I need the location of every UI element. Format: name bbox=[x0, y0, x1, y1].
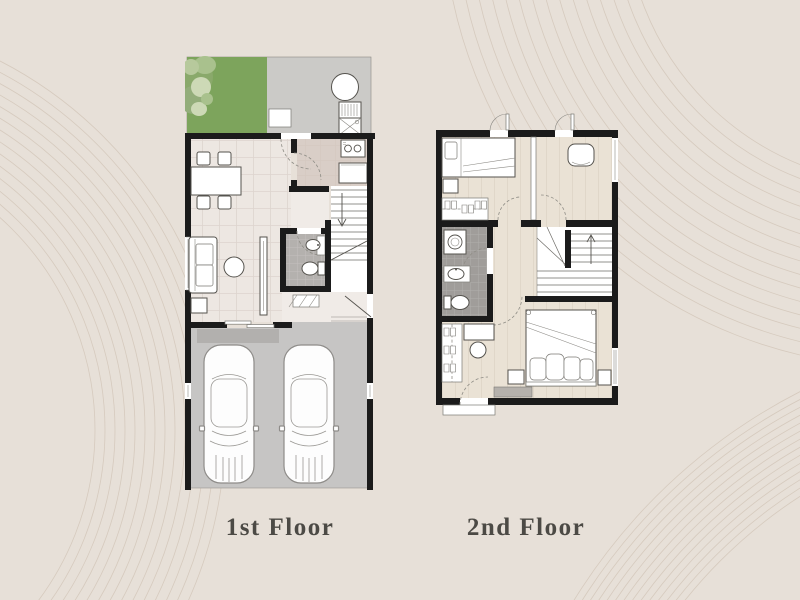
staircase bbox=[325, 186, 367, 292]
bathroom bbox=[280, 228, 331, 292]
first-floor-label: 1st Floor bbox=[185, 511, 375, 545]
chair bbox=[218, 152, 231, 165]
pillow bbox=[546, 354, 564, 380]
stove bbox=[341, 140, 365, 157]
pillow bbox=[445, 142, 457, 159]
kitchen-counter bbox=[339, 163, 367, 183]
pillow bbox=[530, 358, 546, 380]
bathroom-2 bbox=[436, 227, 493, 322]
garage bbox=[191, 322, 367, 488]
terrace-step bbox=[269, 109, 291, 127]
staircase-2 bbox=[537, 227, 612, 296]
laundry-sink bbox=[339, 118, 361, 135]
pillow bbox=[580, 359, 593, 380]
vanity-desk bbox=[464, 324, 494, 340]
side-window bbox=[612, 138, 618, 182]
left-wall bbox=[185, 133, 191, 490]
pillow bbox=[564, 357, 580, 380]
first-floor-plan bbox=[185, 55, 375, 500]
master-window bbox=[612, 348, 618, 386]
walkin-wardrobe bbox=[442, 324, 462, 382]
side-table bbox=[191, 298, 207, 313]
decorative-arcs bbox=[0, 0, 800, 600]
partition-wall bbox=[531, 137, 536, 220]
double-bed bbox=[526, 310, 596, 386]
second-floor-label: 2nd Floor bbox=[430, 511, 622, 545]
second-floor-plan bbox=[430, 106, 622, 418]
water-tank bbox=[332, 74, 359, 101]
wash-basin-2 bbox=[444, 266, 470, 282]
coffee-table bbox=[224, 257, 244, 277]
casement-window bbox=[555, 114, 574, 137]
washing-machine bbox=[339, 102, 361, 118]
toilet-2 bbox=[444, 296, 469, 310]
car bbox=[200, 345, 259, 483]
sliding-door bbox=[225, 321, 274, 328]
car bbox=[280, 345, 339, 483]
single-bed bbox=[442, 138, 515, 177]
casement-window bbox=[490, 114, 509, 137]
armchair bbox=[568, 144, 594, 166]
chair bbox=[197, 152, 210, 165]
chair bbox=[218, 196, 231, 209]
floorplan-sheet: 1st Floor 2nd Floor bbox=[0, 0, 800, 600]
garage-step bbox=[197, 329, 279, 343]
garden bbox=[185, 56, 267, 135]
toilet bbox=[302, 262, 325, 275]
nightstand bbox=[598, 370, 611, 385]
nightstand bbox=[443, 179, 458, 193]
kitchen bbox=[297, 139, 367, 186]
washing-machine-2 bbox=[444, 230, 466, 254]
nightstand bbox=[508, 370, 524, 384]
wardrobe bbox=[442, 198, 488, 220]
door-mat bbox=[289, 295, 319, 307]
chair bbox=[197, 196, 210, 209]
stool bbox=[470, 342, 486, 358]
dining-table bbox=[191, 167, 241, 195]
sofa bbox=[189, 237, 217, 293]
low-console bbox=[494, 387, 532, 397]
tv-console bbox=[260, 237, 267, 315]
